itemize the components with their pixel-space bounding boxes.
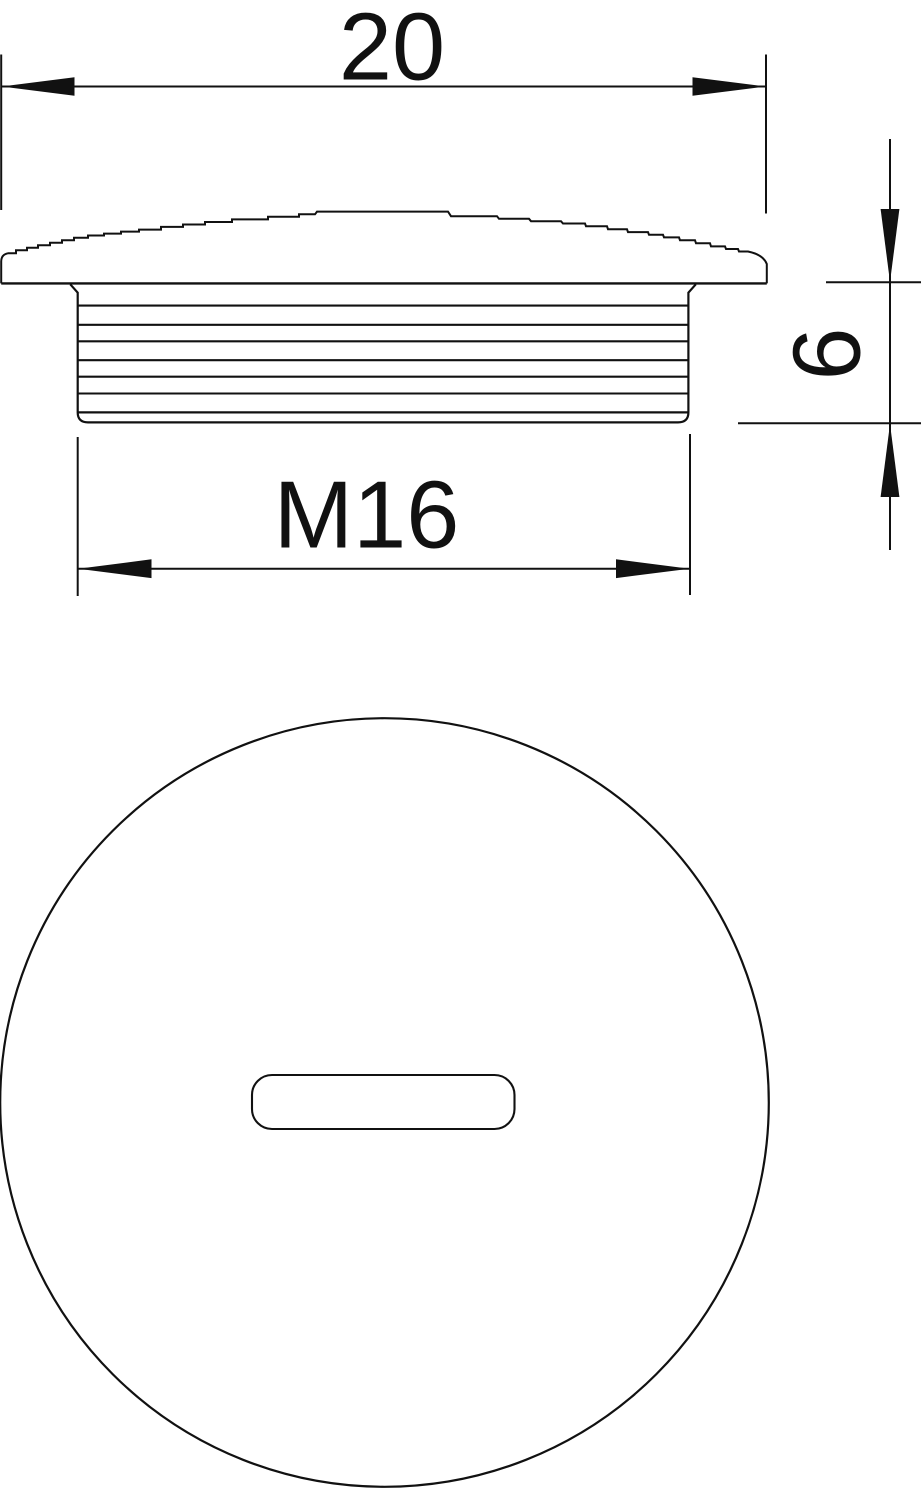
svg-text:M16: M16 <box>274 462 460 568</box>
svg-text:6: 6 <box>775 327 881 380</box>
svg-text:20: 20 <box>339 0 445 101</box>
